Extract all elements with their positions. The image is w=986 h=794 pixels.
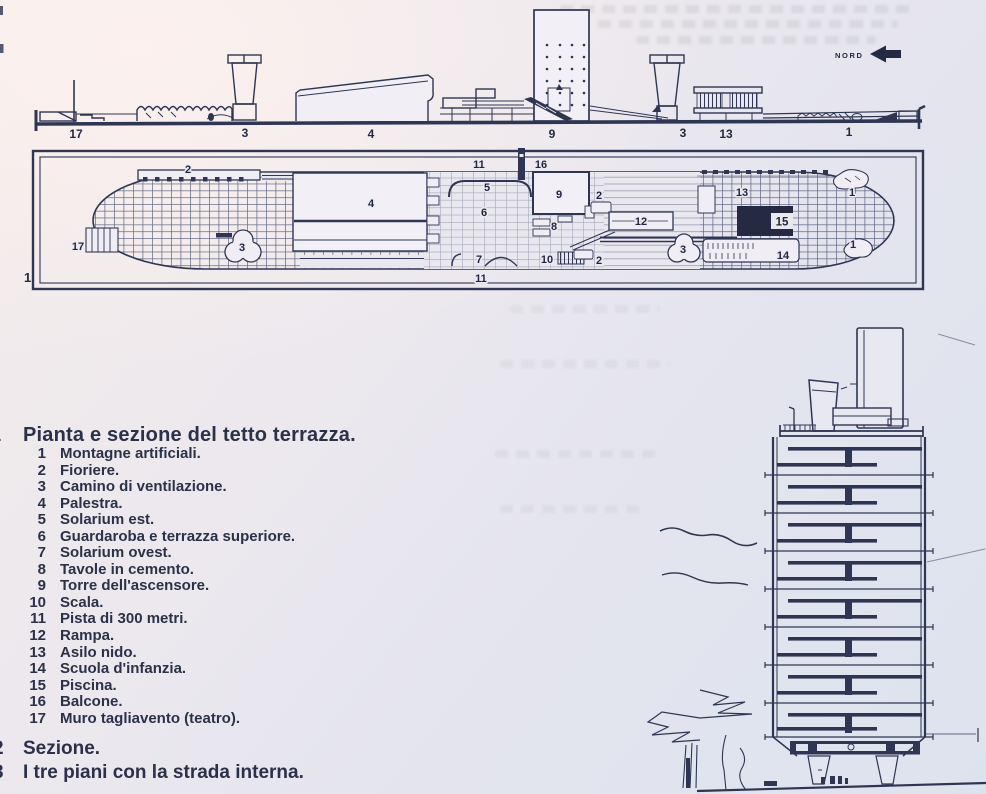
- section-label-4: 4: [368, 127, 375, 141]
- legend-item: 6Guardaroba e terrazza superiore.: [0, 529, 295, 546]
- windbreak-wall-plan: [86, 228, 118, 252]
- plan-label-7: 7: [476, 254, 482, 266]
- legend-item: 1Montagne artificiali.: [0, 446, 295, 463]
- legend-item: 16Balcone.: [0, 694, 295, 711]
- caption-2: 2Sezione.: [0, 738, 100, 760]
- legend-item: 17Muro tagliavento (teatro).: [0, 711, 295, 728]
- apartment-floors: [765, 437, 933, 740]
- gymnasium-4: [296, 75, 433, 121]
- section-label-1: 1: [846, 125, 853, 139]
- plan-label-11-top: 11: [473, 159, 485, 171]
- plan-label-17: 17: [72, 241, 84, 253]
- legend-item: 12Rampa.: [0, 628, 295, 645]
- fioriere-strip: [138, 170, 260, 182]
- plan-label-12: 12: [635, 216, 647, 228]
- north-label: NORD: [835, 51, 863, 60]
- tree-canopy: [648, 690, 752, 742]
- roof-superstructure: [780, 328, 975, 437]
- section-label-17: 17: [69, 127, 83, 141]
- legend-item: 13Asilo nido.: [0, 645, 295, 662]
- section-label-13: 13: [719, 127, 733, 141]
- plan-label-1-upper: 1: [849, 187, 855, 199]
- ventilation-chimney-right: [650, 55, 684, 120]
- baseline-right-cap: [919, 106, 925, 129]
- plan-label-3-right: 3: [680, 244, 686, 256]
- plan-label-5: 5: [484, 182, 490, 194]
- north-arrow-icon: [870, 46, 901, 63]
- plan-label-2-upper: 2: [596, 190, 602, 202]
- tiny-figures: [764, 776, 848, 786]
- plan-label-10: 10: [541, 254, 553, 266]
- plan-label-8: 8: [551, 221, 557, 233]
- caption-2-text: Sezione.: [23, 738, 100, 759]
- piloti-right: [876, 756, 898, 784]
- terrain-squiggle-2: [662, 573, 748, 585]
- nursery-pavilion-13: [694, 87, 762, 120]
- legend-item: 11Pista di 300 metri.: [0, 611, 295, 628]
- figure-number-plan: 1: [24, 270, 31, 285]
- caption-1-text: Pianta e sezione del tetto terrazza.: [23, 424, 356, 446]
- duplex-interlock-bars: [777, 447, 922, 733]
- caption-1-title: 1Pianta e sezione del tetto terrazza.: [0, 424, 356, 447]
- legend-item: 2Fioriere.: [0, 463, 295, 480]
- plan-label-11-bottom: 11: [475, 273, 487, 285]
- plan-label-15: 15: [776, 217, 789, 229]
- north-compass: NORD: [835, 46, 901, 63]
- caption-3: 3I tre piani con la strada interna.: [0, 762, 304, 784]
- page-edge-marks: [0, 6, 4, 53]
- legend-item: 9Torre dell'ascensore.: [0, 578, 295, 595]
- legend-list: 1Montagne artificiali. 2Fioriere. 3Camin…: [0, 446, 295, 727]
- plan-label-2-top: 2: [185, 164, 191, 176]
- roof-slab-baseline: [36, 121, 922, 124]
- plan-label-14: 14: [777, 250, 790, 262]
- roof-plan-drawing: 2 17 3 4 11 5 16 6 9 8 2 12 10 7 2 11 13…: [24, 148, 923, 289]
- ventilation-chimney-left: [207, 55, 261, 121]
- plan-label-2-lower: 2: [596, 255, 602, 267]
- caption-3-text: I tre piani con la strada interna.: [23, 762, 304, 783]
- caption-1-number: 1: [0, 424, 1, 447]
- elevator-tower-plan: [533, 172, 594, 218]
- legend-item: 8Tavole in cemento.: [0, 562, 295, 579]
- plan-label-6: 6: [481, 207, 487, 219]
- section-label-3b: 3: [680, 126, 687, 140]
- building-section-drawing: [648, 328, 986, 791]
- ground-line: [697, 783, 986, 791]
- artificial-mountains-wavy-roof: [137, 107, 232, 122]
- plan-label-13: 13: [736, 187, 748, 199]
- plan-label-4: 4: [368, 198, 375, 210]
- elevator-tower-section: [462, 10, 589, 121]
- roof-section-drawing: NORD 17 3 4 9 3 13 1: [36, 10, 925, 141]
- gym-block: [833, 408, 891, 425]
- plan-label-9: 9: [556, 189, 562, 201]
- section-number-labels: 17 3 4 9 3 13 1: [69, 125, 852, 141]
- rock-outline: [722, 735, 746, 790]
- plan-label-3-left: 3: [239, 242, 245, 254]
- legend-item: 3Camino di ventilazione.: [0, 479, 295, 496]
- nursery-slot: [698, 186, 715, 213]
- roof-railing: [783, 425, 816, 431]
- gymnasium-plan: [293, 173, 439, 251]
- plan-label-16: 16: [535, 159, 547, 171]
- scanned-book-page: { "compass": { "label": "NORD" }, "figur…: [0, 0, 986, 794]
- section-label-9: 9: [549, 127, 556, 141]
- balcony-section-bar: [518, 148, 525, 180]
- caption-2-number: 2: [0, 738, 4, 760]
- legend-item: 14Scuola d'infanzia.: [0, 661, 295, 678]
- terrain-squiggle-1: [660, 528, 757, 546]
- roof-deck-right: [763, 106, 925, 129]
- plan-label-1-lower: 1: [850, 239, 856, 251]
- caption-3-number: 3: [0, 762, 4, 784]
- legend-item: 4Palestra.: [0, 496, 295, 513]
- legend-item: 7Solarium ovest.: [0, 545, 295, 562]
- legend-item: 10Scala.: [0, 595, 295, 612]
- legend-item: 15Piscina.: [0, 678, 295, 695]
- section-label-3a: 3: [242, 126, 249, 140]
- windbreak-wall-17: [40, 80, 137, 122]
- legend-item: 5Solarium est.: [0, 512, 295, 529]
